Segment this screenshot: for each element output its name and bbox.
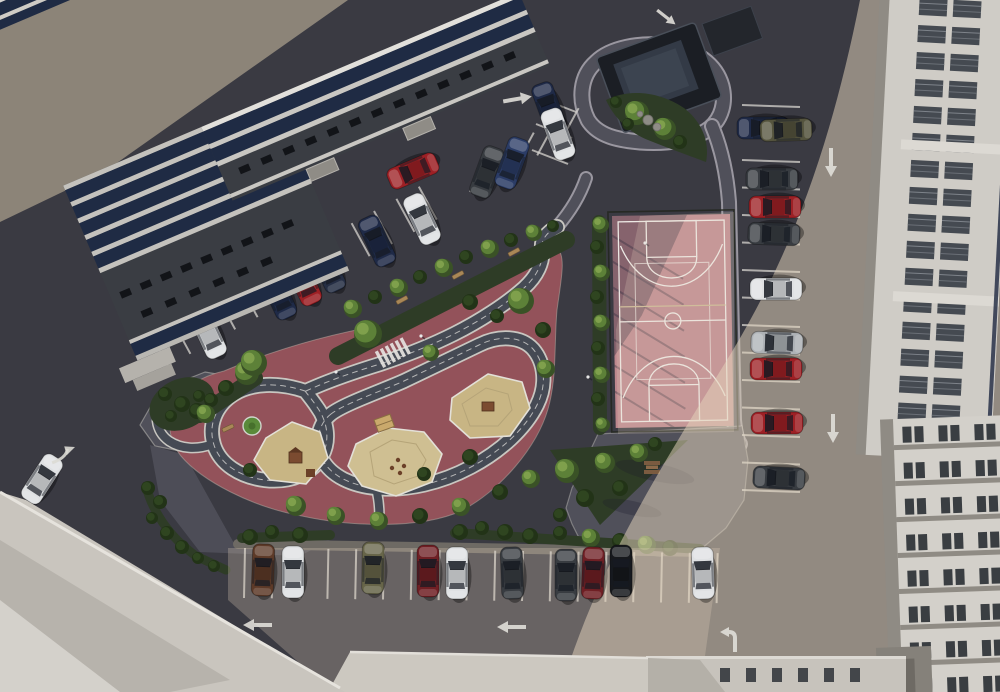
bush-top [498,525,508,535]
car [746,165,802,191]
bush [553,508,567,522]
balcony [947,108,976,126]
bush [497,524,513,540]
bush [673,135,687,149]
balcony [951,27,980,45]
bush [591,341,605,355]
bush-top [460,251,469,260]
bush-top [194,391,202,399]
bush [622,118,634,130]
picnic-table [644,461,660,474]
window [921,606,931,622]
bush-top [147,513,155,521]
window [943,569,953,585]
bush [292,527,308,543]
picnic-bench [644,470,660,474]
tree-highlight [483,242,491,250]
window [974,424,984,440]
balcony [915,79,944,97]
window [957,605,967,621]
tree-highlight [437,261,445,269]
window [905,498,915,514]
balcony [944,162,973,180]
bush-top [591,241,600,250]
rock [653,123,661,131]
tree-highlight [557,461,567,471]
rock [637,111,643,117]
tree [508,288,534,314]
window [954,533,964,549]
bush-top [613,481,623,491]
tree [286,496,306,516]
car [610,545,636,601]
courtyard-render [0,0,1000,692]
tree-highlight [595,368,602,375]
window [975,460,985,476]
bush-top [159,388,168,397]
bush-top [463,295,473,305]
balcony [900,349,929,367]
window [990,531,1000,547]
window [959,677,969,692]
window [995,675,1000,691]
bush-top [205,394,214,403]
window [991,567,1000,583]
bush-top [554,527,563,536]
balcony [909,187,938,205]
bush [462,294,478,310]
tree-highlight [632,446,640,454]
bush-top [209,561,217,569]
bush-top [674,136,683,145]
balcony [933,377,962,395]
tree-highlight [539,362,547,370]
window [902,426,912,442]
bush-top [293,528,303,538]
bush-top [493,485,503,495]
bush [590,290,604,304]
balcony [919,0,948,17]
tree-highlight [595,266,602,273]
window [938,425,948,441]
tree-highlight [627,103,637,113]
tree-highlight [288,498,296,506]
bush-top [649,438,658,447]
bush [174,396,190,412]
bush-top [175,397,185,407]
bush [553,526,567,540]
window [987,460,997,476]
bush [160,526,174,540]
bush [612,480,628,496]
bush-top [548,221,556,229]
window [907,570,917,586]
window [919,570,929,586]
window [950,425,960,441]
window [953,497,963,513]
bush [452,524,468,540]
bush [158,387,172,401]
playhouse-small [306,469,315,477]
bush [153,495,167,509]
bush-top [491,310,500,319]
tree-highlight [372,514,380,522]
window [918,534,928,550]
bush [368,290,382,304]
balcony [941,216,970,234]
tree-highlight [597,455,605,463]
bush [412,508,428,524]
bush [146,512,158,524]
bush-top [536,323,546,333]
tree-highlight [357,323,369,335]
bush-top [523,529,533,539]
balcony [916,52,945,70]
bush [417,467,431,481]
window [945,605,955,621]
window [977,496,987,512]
bush-top [577,490,589,502]
bush-top [142,482,151,491]
bush [193,390,205,402]
balcony [905,268,934,286]
bush [492,484,508,500]
bush [504,233,518,247]
tree-highlight [524,472,532,480]
bush [490,309,504,323]
building-east-south [868,415,1000,692]
bush [165,410,177,422]
window [982,640,992,656]
window [983,676,993,692]
window [917,498,927,514]
car [751,409,807,435]
bush [243,463,257,477]
bush-top [476,522,485,531]
window [951,461,961,477]
bush [413,270,427,284]
bush-top [154,496,163,505]
window [941,497,951,513]
balcony [943,189,972,207]
picnic-bench [644,461,660,465]
bush-top [591,291,600,300]
balcony [907,214,936,232]
bush [204,393,218,407]
tree-highlight [454,500,462,508]
bush-top [414,271,423,280]
playhouse [289,452,302,463]
bush-top [243,530,253,540]
tree-highlight [424,346,431,353]
window [992,603,1000,619]
window [916,462,926,478]
bush-top [554,509,563,518]
balcony [948,81,977,99]
balcony [917,25,946,43]
window [980,604,990,620]
bush [610,96,622,108]
balcony [950,54,979,72]
window [942,533,952,549]
tree [241,350,267,376]
window [914,426,924,442]
car [749,193,805,219]
window [978,532,988,548]
car [750,275,806,301]
balcony [906,241,935,259]
bush-top [623,119,631,127]
balcony [934,350,963,368]
bush-top [463,450,473,460]
car [417,545,443,601]
picnic-top [646,466,658,470]
bush-top [166,411,174,419]
tree-highlight [511,291,522,302]
window [947,677,957,692]
bush [576,489,594,507]
bush [522,528,538,544]
tree [354,320,382,348]
tree-highlight [597,419,603,425]
tree-highlight [199,407,207,415]
bush-top [193,553,201,561]
window [906,534,916,550]
tree-highlight [392,281,400,289]
window [904,462,914,478]
bush-top [453,525,463,535]
balcony [940,243,969,261]
tree-highlight [584,531,592,539]
tree-highlight [595,316,602,323]
bush [648,437,662,451]
window [989,496,999,512]
balcony [913,106,942,124]
bush-top [161,527,170,536]
bush [141,481,155,495]
car [446,547,472,603]
bush-top [244,464,253,473]
rock [643,115,653,125]
bush-top [413,509,423,519]
bush-top [592,393,601,402]
building-east-north [856,0,1000,461]
window [909,606,919,622]
bush-top [266,526,275,535]
balcony [953,0,982,18]
bush [208,560,220,572]
bush-top [369,291,378,300]
tree-highlight [594,218,601,225]
bush [547,220,559,232]
figure [334,370,337,373]
bush-top [418,468,427,477]
tree-highlight [346,302,354,310]
tree [595,453,615,473]
bush [590,240,604,254]
bush-top [592,342,601,351]
bush [175,540,189,554]
tree-highlight [329,509,337,517]
tree-highlight [244,353,255,364]
bush [218,380,234,396]
bush [475,521,489,535]
bush [535,322,551,338]
balcony [910,160,939,178]
window [958,641,968,657]
car [555,549,581,605]
figure [586,375,589,378]
bush [192,552,204,564]
bush-top [505,234,514,243]
climber [482,402,494,411]
scene-svg [0,0,1000,692]
car [750,355,806,381]
bush [242,529,258,545]
balcony [899,376,928,394]
window [955,569,965,585]
bush [459,250,473,264]
car [282,546,308,602]
bush-top [219,381,229,391]
bush [265,525,279,539]
tree [555,459,579,483]
balcony [936,323,965,341]
bush [462,449,478,465]
window [946,641,956,657]
window [939,461,949,477]
figure [419,334,422,337]
bush-top [611,97,619,105]
tree-highlight [527,226,534,233]
balcony [902,322,931,340]
bush [591,392,605,406]
window [979,568,989,584]
balcony [939,269,968,287]
bush-top [176,541,185,550]
window [994,639,1000,655]
window [986,424,996,440]
